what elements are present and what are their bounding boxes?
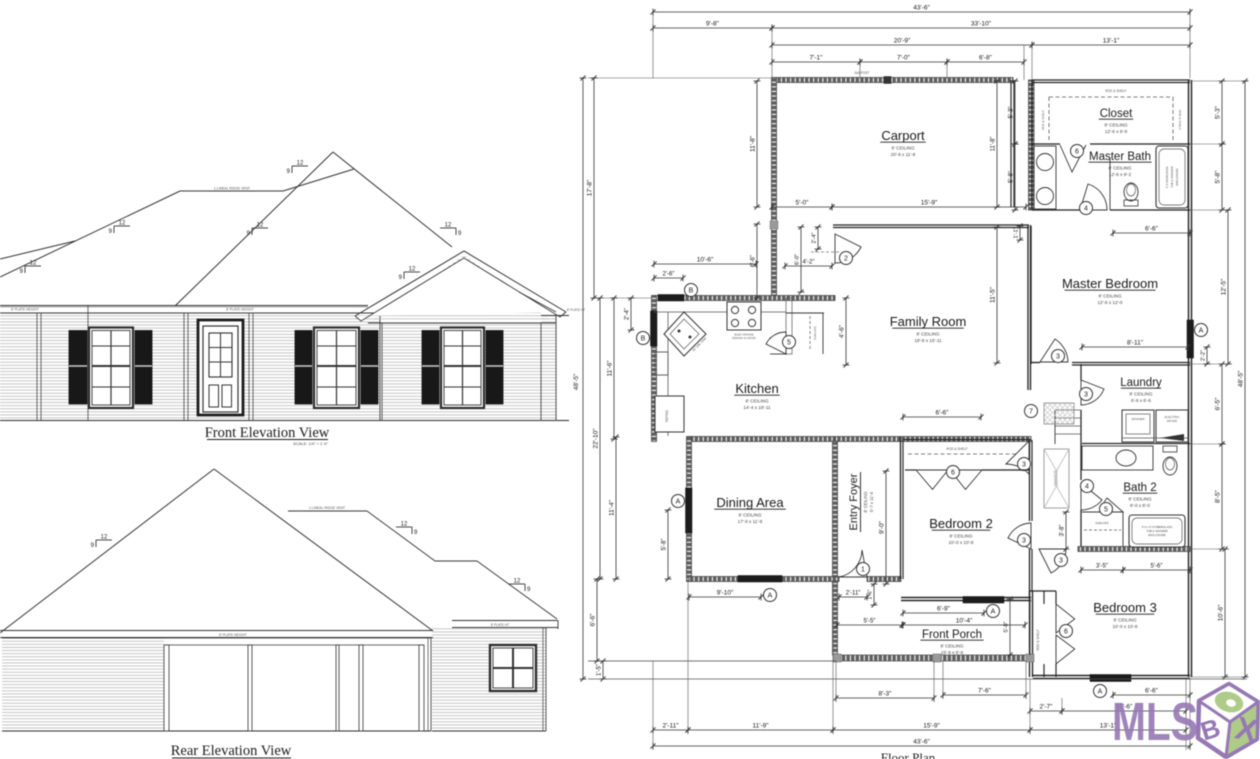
svg-text:A: A <box>676 498 681 505</box>
svg-text:4'-6": 4'-6" <box>839 324 846 338</box>
svg-text:REFRIG: REFRIG <box>665 409 669 422</box>
svg-text:11'-4": 11'-4" <box>609 499 616 516</box>
svg-text:7'-6": 7'-6" <box>978 688 992 695</box>
svg-text:5'-3": 5'-3" <box>1009 107 1015 119</box>
svg-text:43'-6": 43'-6" <box>913 739 930 746</box>
svg-text:8' PLATE HEIGHT: 8' PLATE HEIGHT <box>226 308 254 312</box>
svg-text:6'-6": 6'-6" <box>936 410 950 417</box>
svg-text:2'-6": 2'-6" <box>663 272 675 278</box>
svg-text:12'-5": 12'-5" <box>1221 278 1228 295</box>
svg-text:2'-11": 2'-11" <box>846 591 861 597</box>
svg-text:12'-6 x 12'-0: 12'-6 x 12'-0 <box>1098 300 1123 305</box>
svg-text:33'-10": 33'-10" <box>971 21 992 28</box>
svg-text:ROD & SHELF: ROD & SHELF <box>1036 629 1040 650</box>
svg-text:8' PLATE HT: 8' PLATE HT <box>491 623 509 627</box>
svg-text:15'-9 x 6'-6: 15'-9 x 6'-6 <box>941 650 964 655</box>
svg-text:5'-0 WHIRLPOOL: 5'-0 WHIRLPOOL <box>1165 165 1169 188</box>
svg-text:5'-7 x 11'-4: 5'-7 x 11'-4 <box>869 491 874 512</box>
svg-text:11'-9": 11'-9" <box>752 723 769 730</box>
svg-text:1-LINEAL RIDGE VENT: 1-LINEAL RIDGE VENT <box>214 187 250 191</box>
svg-text:7: 7 <box>1029 408 1033 415</box>
svg-text:3: 3 <box>1022 537 1026 544</box>
svg-text:8' CEILING: 8' CEILING <box>1128 497 1152 502</box>
svg-text:Floor Plan: Floor Plan <box>881 750 936 759</box>
svg-text:1'-5": 1'-5" <box>597 664 603 676</box>
svg-text:3: 3 <box>1084 391 1088 398</box>
svg-text:8' CEILING: 8' CEILING <box>738 513 762 518</box>
svg-text:7'-1": 7'-1" <box>810 55 824 62</box>
svg-text:20'-9": 20'-9" <box>894 38 911 45</box>
svg-text:3'-5": 3'-5" <box>1096 564 1108 570</box>
svg-text:8'-11": 8'-11" <box>1127 340 1144 347</box>
svg-text:12: 12 <box>401 522 408 528</box>
svg-text:22x54 ATTIC: 22x54 ATTIC <box>1053 470 1057 486</box>
svg-text:8' CEILING: 8' CEILING <box>745 399 769 404</box>
svg-text:8' PLATE HEIGHT: 8' PLATE HEIGHT <box>11 308 39 312</box>
svg-text:5'-6": 5'-6" <box>1151 564 1163 570</box>
svg-text:5'-3": 5'-3" <box>1215 105 1222 119</box>
svg-text:8' PLATE HEIGHT: 8' PLATE HEIGHT <box>219 633 247 637</box>
svg-text:8' PLATE HT: 8' PLATE HT <box>567 308 585 312</box>
svg-text:12: 12 <box>257 223 264 229</box>
svg-text:A: A <box>991 608 996 615</box>
svg-text:8' CEILING: 8' CEILING <box>1104 123 1128 128</box>
svg-text:8' CEILING: 8' CEILING <box>916 332 940 337</box>
svg-text:12'-6 x 9'-2: 12'-6 x 9'-2 <box>1109 172 1132 177</box>
svg-text:6'-0": 6'-0" <box>795 254 801 265</box>
svg-text:Laundry: Laundry <box>1120 377 1162 389</box>
svg-text:8' CEILING: 8' CEILING <box>1098 294 1122 299</box>
svg-text:Family Room: Family Room <box>890 314 967 329</box>
svg-text:12: 12 <box>30 261 37 267</box>
svg-text:1'-6": 1'-6" <box>868 589 874 599</box>
svg-text:6: 6 <box>951 469 955 476</box>
svg-text:Entry Foyer: Entry Foyer <box>848 473 860 530</box>
svg-text:43'-6": 43'-6" <box>913 5 930 12</box>
svg-text:5'-8": 5'-8" <box>1215 170 1222 184</box>
svg-text:12: 12 <box>445 223 452 229</box>
svg-text:8' CEILING: 8' CEILING <box>1129 392 1153 397</box>
svg-text:ROD & SHELF: ROD & SHELF <box>1041 110 1045 130</box>
svg-text:7'-0": 7'-0" <box>897 55 911 62</box>
svg-text:8'-5": 8'-5" <box>1215 489 1222 503</box>
svg-text:12'-6 x 6'-8: 12'-6 x 6'-8 <box>1105 129 1128 134</box>
svg-text:6'-6": 6'-6" <box>1145 226 1159 233</box>
svg-text:B: B <box>689 287 694 294</box>
svg-text:5'-8": 5'-8" <box>662 539 668 551</box>
svg-text:11'-8": 11'-8" <box>991 137 997 152</box>
svg-text:Front Elevation View: Front Elevation View <box>205 425 330 441</box>
svg-text:2'-7": 2'-7" <box>1040 704 1054 711</box>
svg-text:6'-6": 6'-6" <box>590 613 597 627</box>
svg-text:18'-8 x 16'-11: 18'-8 x 16'-11 <box>914 338 942 343</box>
svg-text:12: 12 <box>119 221 126 227</box>
svg-text:ROD & SHELF: ROD & SHELF <box>1105 89 1126 93</box>
svg-text:ROD & SHELF: ROD & SHELF <box>946 447 967 451</box>
svg-text:11'-5": 11'-5" <box>990 286 997 303</box>
svg-text:5: 5 <box>787 339 791 346</box>
svg-text:2'-4": 2'-4" <box>812 232 818 243</box>
svg-text:10'-6": 10'-6" <box>697 257 714 264</box>
svg-text:12: 12 <box>101 535 108 541</box>
svg-text:9'-0": 9'-0" <box>879 520 886 534</box>
svg-text:Master Bedroom: Master Bedroom <box>1062 276 1158 291</box>
svg-text:3'-8": 3'-8" <box>1060 525 1066 537</box>
svg-text:6'-5": 6'-5" <box>1215 397 1222 411</box>
svg-text:14'-4 x 18'-11: 14'-4 x 18'-11 <box>743 405 771 410</box>
svg-text:B: B <box>641 335 646 342</box>
svg-text:10'-6": 10'-6" <box>1218 604 1225 621</box>
svg-text:48'-5": 48'-5" <box>573 373 580 390</box>
svg-text:Bedroom 3: Bedroom 3 <box>1093 600 1157 615</box>
svg-text:SCALE: 1/4" = 1'-0": SCALE: 1/4" = 1'-0" <box>293 441 328 446</box>
svg-text:22'-10": 22'-10" <box>593 428 600 449</box>
svg-text:Kitchen: Kitchen <box>735 381 778 396</box>
svg-text:Bath 2: Bath 2 <box>1123 482 1156 494</box>
svg-text:Closet: Closet <box>1100 108 1133 120</box>
svg-text:20'-8 x 11'-8: 20'-8 x 11'-8 <box>891 152 916 157</box>
svg-text:DRYER: DRYER <box>1167 419 1178 423</box>
svg-text:8'-3": 8'-3" <box>879 691 893 698</box>
svg-text:Carport: Carport <box>881 128 925 143</box>
svg-text:ENCLOSURE: ENCLOSURE <box>1175 168 1179 186</box>
svg-text:A: A <box>768 592 773 599</box>
svg-text:A: A <box>1098 688 1103 695</box>
svg-text:1-LINEAL RIDGE VENT: 1-LINEAL RIDGE VENT <box>309 506 345 510</box>
svg-text:11'-8": 11'-8" <box>750 135 757 152</box>
svg-text:8' CEILING: 8' CEILING <box>940 644 964 649</box>
svg-text:WASHER: WASHER <box>1131 417 1145 421</box>
svg-text:2: 2 <box>844 255 848 262</box>
svg-text:TUB & SHOWER: TUB & SHOWER <box>1170 166 1174 188</box>
svg-text:15'-9": 15'-9" <box>923 723 940 730</box>
svg-text:4: 4 <box>1084 205 1088 212</box>
svg-text:6'-8": 6'-8" <box>979 55 993 62</box>
svg-text:8' CEILING: 8' CEILING <box>891 146 915 151</box>
svg-text:8'-0 x 8'-0: 8'-0 x 8'-0 <box>1130 503 1150 508</box>
svg-text:13'-1": 13'-1" <box>1103 38 1120 45</box>
svg-text:8' CEILING: 8' CEILING <box>1113 618 1137 623</box>
svg-text:6: 6 <box>1064 628 1068 635</box>
svg-text:8' CEILING: 8' CEILING <box>1108 166 1132 171</box>
svg-text:12: 12 <box>297 161 304 167</box>
svg-text:ROD & SHELF: ROD & SHELF <box>1178 110 1182 130</box>
svg-text:4: 4 <box>1085 483 1089 490</box>
svg-text:1'-1": 1'-1" <box>1014 227 1020 238</box>
svg-text:Master Bath: Master Bath <box>1089 151 1151 163</box>
svg-text:15'-9": 15'-9" <box>921 200 938 207</box>
svg-text:Dining Area: Dining Area <box>716 495 784 510</box>
svg-text:3: 3 <box>1056 353 1060 360</box>
svg-text:17'-0 x 11'-8: 17'-0 x 11'-8 <box>738 519 763 524</box>
svg-text:9'-8": 9'-8" <box>706 21 720 28</box>
svg-text:6: 6 <box>1075 148 1079 155</box>
svg-text:5'-8": 5'-8" <box>1009 171 1015 183</box>
svg-text:5: 5 <box>1104 506 1108 513</box>
svg-text:Rear Elevation View: Rear Elevation View <box>171 743 292 759</box>
svg-text:2'-4": 2'-4" <box>625 308 631 320</box>
svg-text:9'-10": 9'-10" <box>717 590 734 597</box>
svg-text:2'-11": 2'-11" <box>662 723 679 730</box>
svg-text:12: 12 <box>409 267 416 273</box>
svg-text:6'-9": 6'-9" <box>937 606 951 613</box>
svg-text:12: 12 <box>514 579 521 585</box>
svg-text:2'-2": 2'-2" <box>1201 350 1207 361</box>
svg-text:6x6 POST: 6x6 POST <box>855 71 870 75</box>
svg-text:SHELVES: SHELVES <box>1095 521 1109 525</box>
svg-text:4'-2": 4'-2" <box>803 260 815 266</box>
svg-text:SHELVES: SHELVES <box>813 326 817 340</box>
svg-text:MLS: MLS <box>1112 692 1198 752</box>
svg-text:10'-0 x 10'-8: 10'-0 x 10'-8 <box>1113 624 1138 629</box>
svg-text:A: A <box>1199 327 1204 334</box>
svg-text:Bedroom 2: Bedroom 2 <box>929 516 993 531</box>
svg-text:10'-4": 10'-4" <box>956 618 973 625</box>
svg-text:10'-0 x 10'-8: 10'-0 x 10'-8 <box>949 540 974 545</box>
svg-text:17'-8": 17'-8" <box>587 179 594 196</box>
svg-text:5'-5": 5'-5" <box>864 619 876 625</box>
svg-text:8' CEILING: 8' CEILING <box>949 534 973 539</box>
svg-text:8' CEILING: 8' CEILING <box>863 491 868 512</box>
svg-text:3: 3 <box>1059 557 1063 564</box>
svg-text:11'-6": 11'-6" <box>607 360 614 377</box>
svg-text:5'-0": 5'-0" <box>796 200 810 207</box>
svg-text:DWASH & HOOD: DWASH & HOOD <box>732 336 757 340</box>
svg-text:3: 3 <box>1022 461 1026 468</box>
svg-text:48'-5": 48'-5" <box>1238 370 1245 387</box>
svg-text:ENCLOSURE: ENCLOSURE <box>1148 533 1166 537</box>
svg-text:5'-0": 5'-0" <box>1004 621 1010 632</box>
svg-text:1: 1 <box>861 566 865 573</box>
svg-text:Front Porch: Front Porch <box>922 629 982 641</box>
svg-text:6'-6 x 6'-6: 6'-6 x 6'-6 <box>1131 398 1151 403</box>
